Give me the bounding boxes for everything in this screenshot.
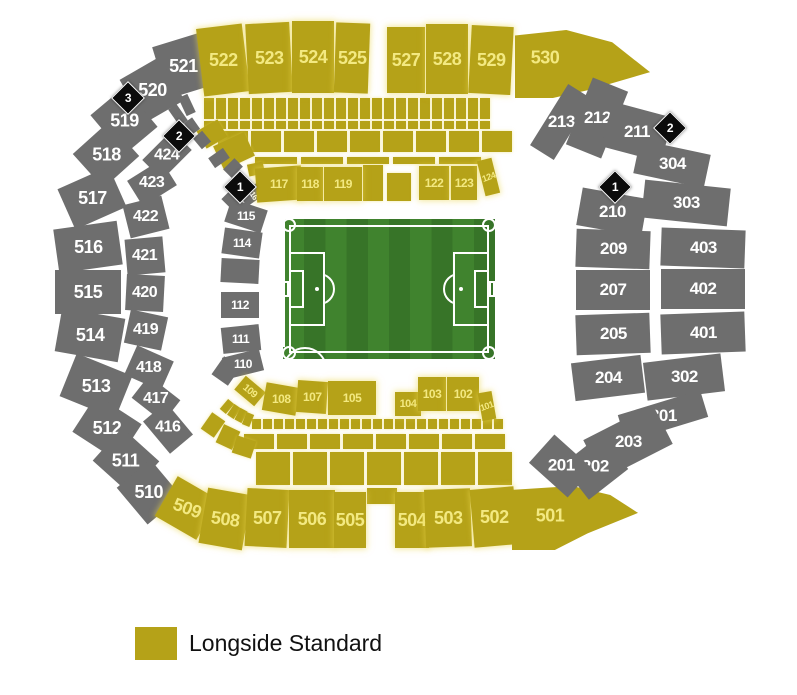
section-label: 205: [600, 324, 627, 344]
seat-block: [256, 452, 290, 485]
section-label: 501: [536, 506, 565, 527]
section-209[interactable]: 209: [575, 229, 650, 270]
section-label: 213: [548, 112, 575, 132]
section-105[interactable]: 105: [328, 381, 376, 415]
seat-block: [444, 121, 454, 129]
section-103[interactable]: 103: [418, 377, 446, 411]
section-527[interactable]: 527: [387, 27, 425, 93]
section-label: 115: [237, 209, 255, 223]
seat-block: [367, 488, 397, 504]
section-505[interactable]: 505: [334, 492, 366, 548]
section-303[interactable]: 303: [641, 180, 731, 227]
section-524[interactable]: 524: [292, 21, 334, 93]
seat-block: [420, 121, 430, 129]
section-402[interactable]: 402: [661, 269, 745, 309]
section-label: 416: [155, 419, 180, 437]
seat-block: [384, 98, 394, 119]
section-label: 522: [209, 50, 238, 71]
legend-label: Longside Standard: [189, 627, 382, 660]
seat-block: [336, 98, 346, 119]
seat-block: [204, 98, 214, 119]
section-label: 529: [477, 49, 506, 70]
gate-marker-label: 3: [125, 91, 132, 105]
section-label: 401: [690, 323, 717, 343]
section-label: 523: [255, 48, 284, 69]
seat-block: [444, 98, 454, 119]
seat-block: [395, 419, 404, 429]
section-label: 510: [135, 481, 164, 502]
seat-block: [312, 121, 322, 129]
seat-block: [348, 98, 358, 119]
seat-block: [240, 98, 250, 119]
section-label: 123: [455, 176, 474, 190]
section-label: 521: [169, 56, 198, 77]
seat-block: [384, 121, 394, 129]
gate-marker-label: 1: [612, 180, 619, 194]
seat-block: [456, 98, 466, 119]
section-122[interactable]: 122: [419, 166, 449, 200]
section-label: 114: [233, 236, 251, 250]
seat-block: [468, 98, 478, 119]
seat-block: [372, 121, 382, 129]
section-502[interactable]: 502: [470, 486, 519, 548]
seat-block: [300, 121, 310, 129]
seat-block: [362, 419, 371, 429]
section-102[interactable]: 102: [447, 377, 479, 411]
seat-block: [439, 419, 448, 429]
section-label: 207: [600, 280, 627, 300]
section-label: 403: [690, 238, 717, 258]
seat-block: [307, 419, 316, 429]
section-507[interactable]: 507: [245, 488, 290, 548]
section-101[interactable]: 101: [478, 391, 497, 421]
seat-block: [264, 98, 274, 119]
section-421[interactable]: 421: [125, 236, 166, 275]
corner-arc: [283, 346, 296, 359]
seat-block: [348, 121, 358, 129]
seat-block: [367, 452, 401, 485]
legend: Longside Standard: [135, 627, 382, 660]
seat-block: [416, 131, 446, 152]
section-204[interactable]: 204: [571, 355, 645, 401]
section-label: 201: [548, 456, 575, 476]
section-label: 503: [434, 508, 463, 529]
section-label: 110: [234, 357, 252, 371]
penalty-spot-left: [315, 287, 319, 291]
section-label: 505: [336, 510, 365, 531]
section-label: 211: [624, 122, 650, 142]
seat-block: [408, 98, 418, 119]
section-422[interactable]: 422: [122, 196, 169, 239]
seat-block: [343, 434, 373, 449]
section-label: 517: [78, 188, 107, 209]
seat-block: [428, 419, 437, 429]
seat-block: [456, 121, 466, 129]
section-label: 103: [423, 387, 442, 401]
section-label: 502: [480, 507, 509, 528]
section-label: 515: [74, 282, 103, 303]
section-420[interactable]: 420: [125, 274, 165, 312]
seat-block: [301, 157, 343, 164]
seat-block: [276, 98, 286, 119]
section-label: 420: [132, 284, 157, 302]
seat-block: [472, 419, 481, 429]
seat-block: [480, 98, 490, 119]
gate-marker-label: 2: [667, 121, 674, 135]
seat-block: [312, 98, 322, 119]
seat-block: [373, 419, 382, 429]
section-label: 530: [531, 48, 560, 69]
seat-block: [228, 121, 238, 129]
seat-block: [494, 419, 503, 429]
section-522[interactable]: 522: [196, 23, 250, 96]
section-label: 504: [398, 510, 427, 531]
section-528[interactable]: 528: [426, 24, 468, 94]
section-516[interactable]: 516: [53, 221, 123, 273]
seat-block: [330, 452, 364, 485]
section-205[interactable]: 205: [575, 313, 650, 356]
seat-block: [461, 419, 470, 429]
section-label: 506: [298, 509, 327, 530]
section-label: 102: [454, 387, 473, 401]
seat-block: [228, 98, 238, 119]
seat-block: [408, 121, 418, 129]
seat-block: [383, 131, 413, 152]
section-label: 509: [170, 493, 204, 522]
section-label: 118: [301, 177, 319, 191]
section-label: 104: [400, 398, 417, 410]
section-label: 422: [133, 208, 158, 226]
seat-block: [387, 173, 411, 201]
section-label: 107: [303, 390, 322, 404]
seat-block: [376, 434, 406, 449]
section-529[interactable]: 529: [468, 25, 514, 95]
seat-block: [432, 121, 442, 129]
seat-block: [324, 98, 334, 119]
seat-block: [264, 121, 274, 129]
seat-block: [251, 131, 281, 152]
seat-block: [220, 258, 259, 284]
seat-block: [363, 165, 383, 201]
section-112[interactable]: 112: [221, 292, 259, 318]
seat-block: [310, 434, 340, 449]
section-label: 203: [615, 432, 642, 452]
seat-block: [480, 121, 490, 129]
seat-block: [478, 452, 512, 485]
seat-block: [360, 121, 370, 129]
section-label: 112: [231, 298, 249, 312]
gate-marker-label: 2: [176, 129, 183, 143]
legend-swatch: [135, 627, 177, 660]
section-label: 513: [82, 375, 111, 396]
pitch: [283, 219, 495, 359]
section-label: 108: [272, 392, 291, 406]
section-109[interactable]: 109: [234, 376, 265, 407]
section-514[interactable]: 514: [55, 308, 126, 362]
section-label: 514: [76, 324, 105, 345]
seat-block: [393, 157, 435, 164]
section-label: 302: [671, 367, 698, 387]
goal-area-left: [289, 270, 304, 308]
seat-block: [450, 419, 459, 429]
section-label: 423: [139, 174, 164, 192]
seat-block: [396, 98, 406, 119]
seat-block: [409, 434, 439, 449]
section-123[interactable]: 123: [451, 166, 477, 200]
section-label: 204: [595, 368, 622, 388]
section-503[interactable]: 503: [424, 488, 472, 548]
seat-block: [351, 419, 360, 429]
section-403[interactable]: 403: [660, 228, 745, 269]
seat-block: [277, 434, 307, 449]
section-419[interactable]: 419: [124, 309, 168, 350]
section-label: 304: [659, 154, 686, 174]
seat-block: [404, 452, 438, 485]
section-401[interactable]: 401: [660, 312, 745, 355]
section-label: 421: [132, 247, 157, 265]
section-label: 119: [334, 177, 352, 191]
section-label: 111: [232, 332, 249, 346]
section-label: 122: [425, 176, 444, 190]
seat-block: [318, 419, 327, 429]
seat-block: [293, 452, 327, 485]
corner-arc: [482, 346, 495, 359]
seat-block: [441, 452, 475, 485]
seat-block: [288, 98, 298, 119]
section-506[interactable]: 506: [289, 490, 335, 548]
seat-block: [350, 131, 380, 152]
seat-block: [417, 419, 426, 429]
section-label: 402: [690, 279, 717, 299]
section-117[interactable]: 117: [255, 165, 303, 202]
seat-block: [442, 434, 472, 449]
section-108[interactable]: 108: [262, 382, 300, 415]
seat-block: [449, 131, 479, 152]
section-207[interactable]: 207: [576, 270, 650, 310]
section-label: 117: [270, 177, 288, 191]
section-label: 109: [241, 382, 260, 400]
seat-block: [285, 419, 294, 429]
section-label: 105: [343, 391, 362, 405]
seat-block: [420, 98, 430, 119]
seat-block: [396, 121, 406, 129]
section-label: 528: [433, 49, 462, 70]
seat-block: [468, 121, 478, 129]
section-label: 507: [253, 507, 282, 528]
seat-block: [252, 121, 262, 129]
section-118[interactable]: 118: [297, 167, 323, 201]
section-label: 210: [599, 202, 626, 222]
section-530[interactable]: 530: [515, 30, 650, 98]
section-525[interactable]: 525: [334, 22, 370, 93]
section-107[interactable]: 107: [296, 380, 328, 414]
seat-block: [336, 121, 346, 129]
seat-block: [406, 419, 415, 429]
seat-block: [475, 434, 505, 449]
seat-block: [340, 419, 349, 429]
section-label: 516: [74, 237, 103, 258]
section-label: 525: [338, 47, 367, 68]
section-label: 303: [673, 193, 700, 213]
seat-block: [372, 98, 382, 119]
section-label: 209: [600, 239, 627, 259]
seat-block: [482, 131, 512, 152]
section-label: 518: [92, 145, 121, 166]
section-label: 418: [136, 359, 161, 377]
goal-left: [283, 281, 289, 297]
section-label: 124: [480, 170, 496, 184]
seat-block: [324, 121, 334, 129]
section-label: 419: [133, 321, 158, 339]
seat-block: [240, 121, 250, 129]
seat-block: [317, 131, 347, 152]
stadium-seat-map: 5215225235245255275285295305205195185175…: [0, 0, 797, 695]
section-label: 508: [209, 507, 240, 532]
section-508[interactable]: 508: [198, 488, 251, 551]
seat-block: [284, 131, 314, 152]
seat-block: [439, 157, 481, 164]
section-523[interactable]: 523: [245, 22, 293, 94]
corner-arc: [482, 219, 495, 232]
seat-block: [252, 419, 261, 429]
section-label: 527: [392, 50, 421, 71]
section-302[interactable]: 302: [643, 353, 725, 400]
seat-block: [347, 157, 389, 164]
seat-block: [263, 419, 272, 429]
seat-block: [296, 419, 305, 429]
section-label: 101: [479, 399, 495, 413]
seat-block: [432, 98, 442, 119]
penalty-spot-right: [459, 287, 463, 291]
section-501[interactable]: 501: [512, 486, 638, 550]
section-124[interactable]: 124: [476, 158, 499, 197]
seat-block: [276, 121, 286, 129]
seat-block: [384, 419, 393, 429]
seat-block: [252, 98, 262, 119]
section-label: 511: [112, 450, 140, 471]
seat-block: [288, 121, 298, 129]
gate-marker-label: 1: [237, 180, 244, 194]
seat-block: [216, 98, 226, 119]
seat-block: [360, 98, 370, 119]
seat-block: [300, 98, 310, 119]
section-114[interactable]: 114: [221, 227, 262, 258]
goal-right: [489, 281, 495, 297]
section-119[interactable]: 119: [324, 167, 362, 201]
goal-area-right: [474, 270, 489, 308]
seat-block: [274, 419, 283, 429]
section-label: 524: [299, 47, 328, 68]
seat-block: [329, 419, 338, 429]
